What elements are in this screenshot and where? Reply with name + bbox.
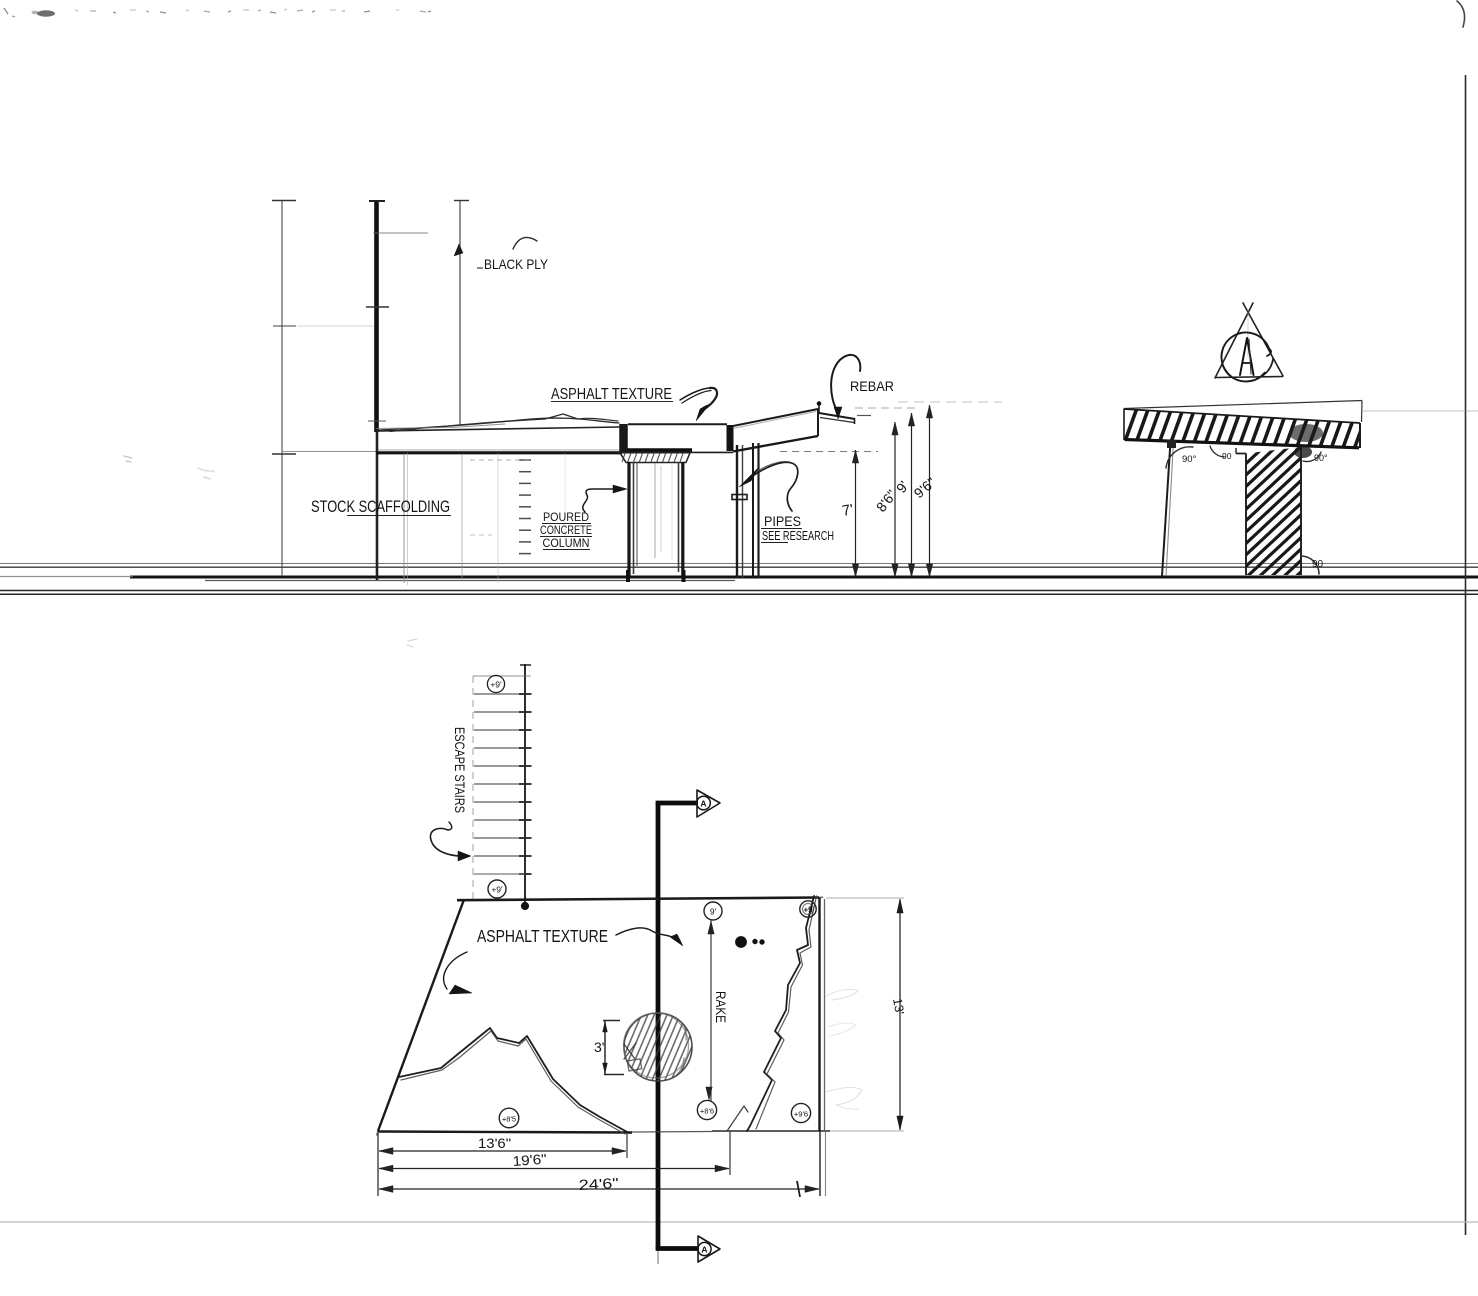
svg-text:7': 7' xyxy=(841,501,855,520)
svg-text:A: A xyxy=(701,1245,707,1255)
svg-text:13'6": 13'6" xyxy=(478,1135,511,1151)
svg-text:90: 90 xyxy=(1312,559,1324,570)
svg-text:A: A xyxy=(700,799,706,809)
svg-text:PIPES: PIPES xyxy=(764,514,801,529)
svg-text:ASPHALT TEXTURE: ASPHALT TEXTURE xyxy=(551,386,672,403)
svg-text:+8'5: +8'5 xyxy=(502,1115,516,1124)
svg-text:CONCRETE: CONCRETE xyxy=(540,523,592,537)
svg-text:ASPHALT TEXTURE: ASPHALT TEXTURE xyxy=(477,926,608,946)
svg-text:STOCK SCAFFOLDING: STOCK SCAFFOLDING xyxy=(311,498,450,516)
svg-text:REBAR: REBAR xyxy=(850,378,894,394)
svg-text:BLACK PLY: BLACK PLY xyxy=(484,256,549,272)
svg-text:RAKE: RAKE xyxy=(713,991,728,1023)
svg-text:COLUMN: COLUMN xyxy=(543,536,590,550)
svg-text:24'6": 24'6" xyxy=(578,1176,619,1194)
svg-text:3': 3' xyxy=(594,1039,604,1055)
svg-text:13': 13' xyxy=(890,997,907,1015)
svg-text:9'6": 9'6" xyxy=(911,474,939,501)
svg-text:90°: 90° xyxy=(1182,454,1197,465)
svg-text:9': 9' xyxy=(710,907,717,917)
svg-text:+9': +9' xyxy=(491,885,503,895)
svg-text:90°: 90° xyxy=(1314,453,1328,463)
svg-text:ESCAPE STAIRS: ESCAPE STAIRS xyxy=(452,727,468,813)
svg-text:9': 9' xyxy=(893,478,912,496)
svg-text:SEE RESEARCH: SEE RESEARCH xyxy=(762,528,834,543)
svg-text:+8'6: +8'6 xyxy=(700,1107,714,1116)
svg-text:+9'6: +9'6 xyxy=(794,1110,808,1119)
svg-text:19'6": 19'6" xyxy=(512,1151,547,1169)
svg-text:+9': +9' xyxy=(490,680,502,690)
svg-text:90: 90 xyxy=(1222,451,1232,461)
svg-text:POURED: POURED xyxy=(543,510,589,524)
svg-text:8'6": 8'6" xyxy=(873,487,900,515)
